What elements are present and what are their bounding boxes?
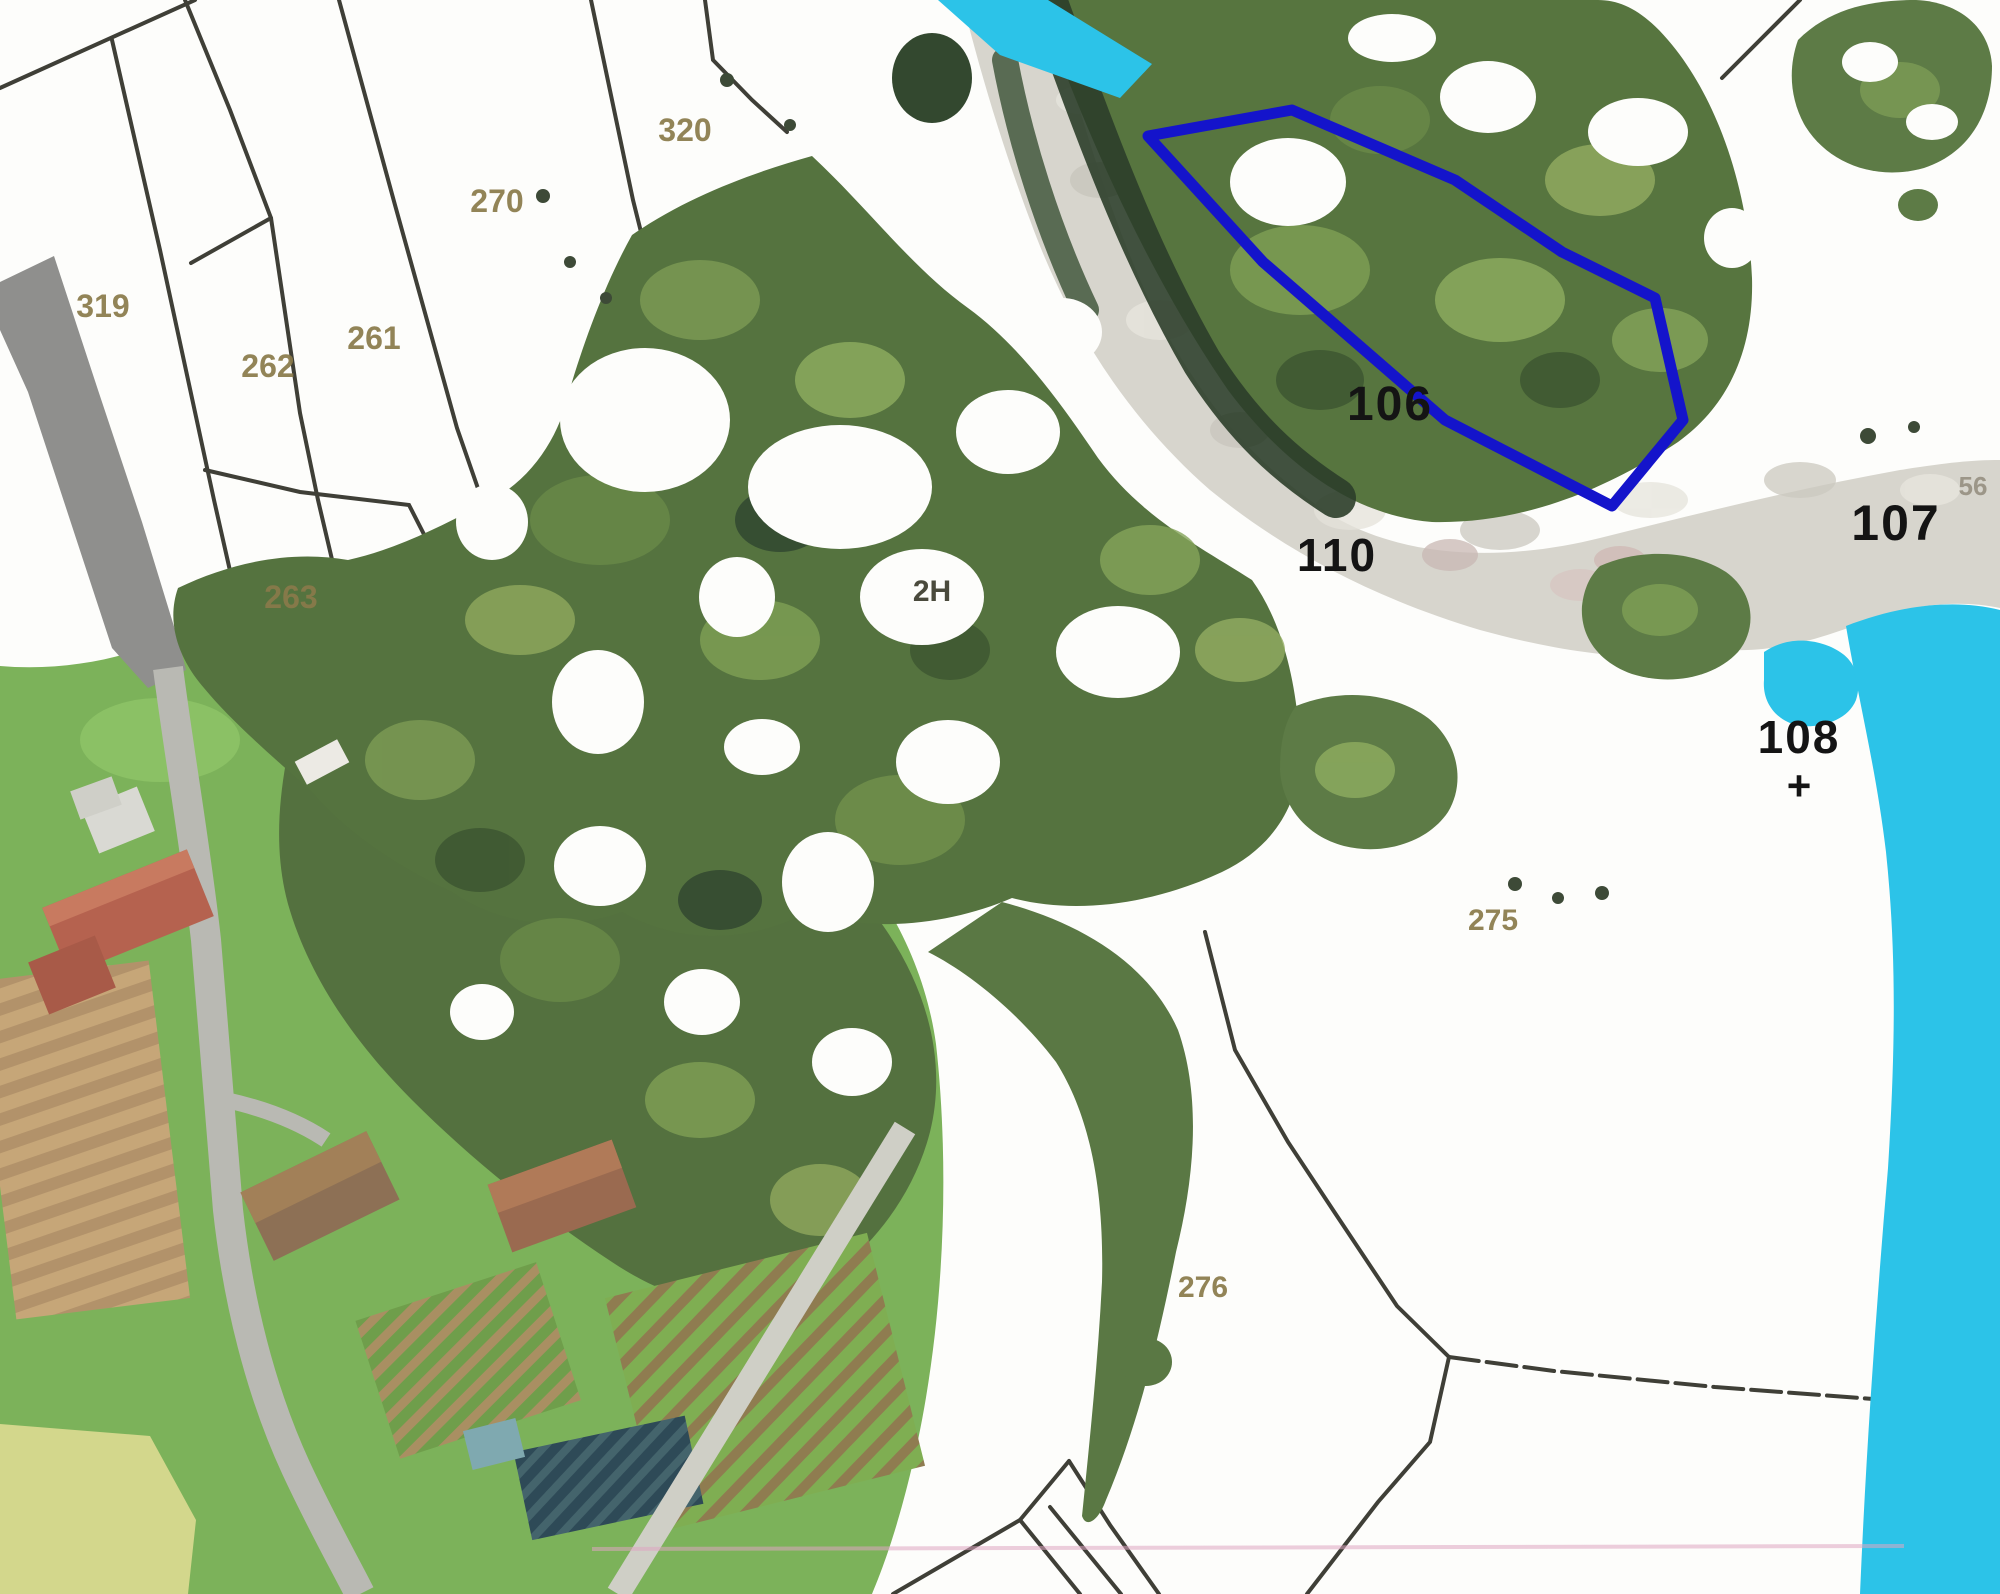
parcel-label-262: 262 <box>241 348 294 384</box>
plus-mark: + <box>1787 762 1812 809</box>
parcel-label-263: 263 <box>264 579 317 615</box>
parcel-label-107: 107 <box>1851 495 1940 551</box>
parcel-label-276: 276 <box>1178 1271 1228 1304</box>
parcel-label-275: 275 <box>1468 904 1518 937</box>
map-svg: 320270319261262263275276562H106110107108… <box>0 0 2000 1594</box>
parcel-label-110: 110 <box>1297 529 1377 581</box>
parcel-label-270: 270 <box>470 183 523 219</box>
parcel-label-108: 108 <box>1758 711 1841 763</box>
map-canvas[interactable]: 320270319261262263275276562H106110107108… <box>0 0 2000 1594</box>
parcel-label-2H: 2H <box>913 575 951 608</box>
parcel-label-106: 106 <box>1347 378 1433 431</box>
parcel-label-320: 320 <box>658 112 711 148</box>
parcel-label-56: 56 <box>1959 471 1988 501</box>
parcel-label-319: 319 <box>76 288 129 324</box>
parcel-label-261: 261 <box>347 320 400 356</box>
